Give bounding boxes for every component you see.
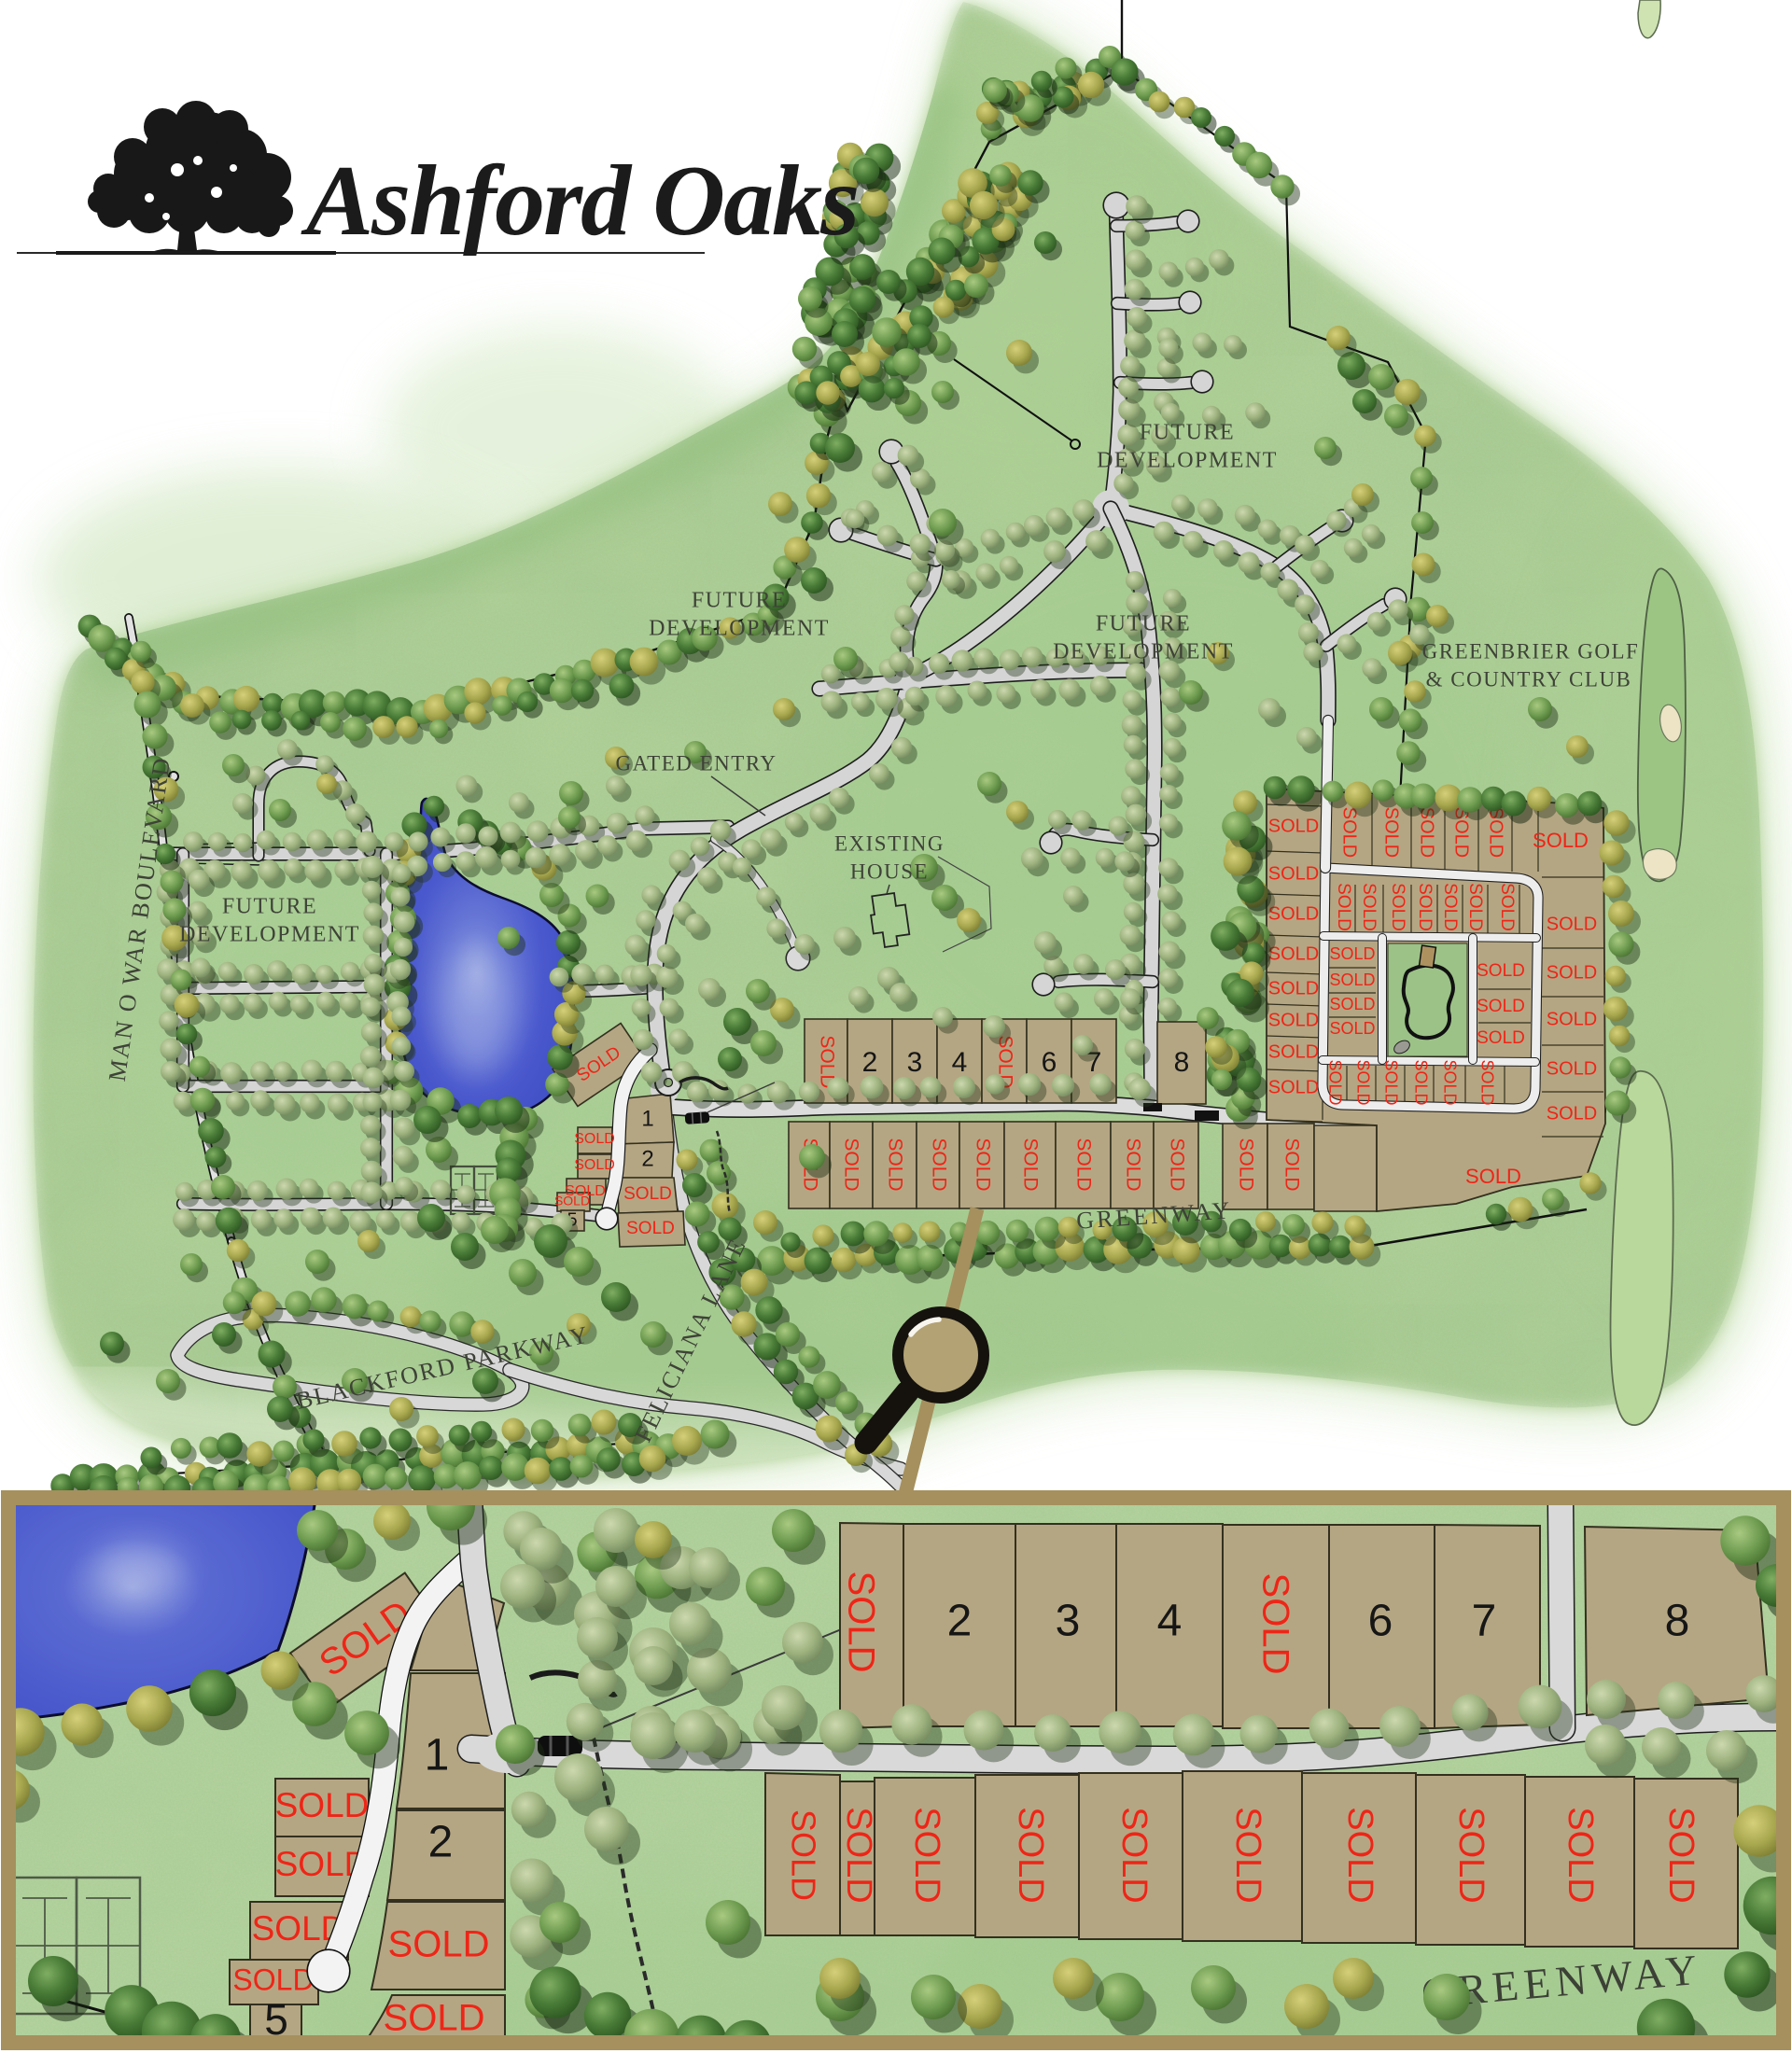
- svg-text:Ashford Oaks: Ashford Oaks: [301, 146, 858, 257]
- svg-text:FUTURE: FUTURE: [222, 895, 317, 919]
- svg-text:SOLD: SOLD: [840, 1138, 861, 1191]
- svg-text:GATED ENTRY: GATED ENTRY: [615, 751, 777, 775]
- svg-text:SOLD: SOLD: [232, 1962, 314, 1996]
- svg-text:SOLD: SOLD: [1268, 1010, 1319, 1030]
- svg-text:SOLD: SOLD: [623, 1184, 672, 1204]
- svg-text:DEVELOPMENT: DEVELOPMENT: [1097, 449, 1278, 473]
- svg-text:2: 2: [862, 1047, 878, 1078]
- svg-text:DEVELOPMENT: DEVELOPMENT: [649, 617, 830, 641]
- svg-text:6: 6: [1042, 1047, 1057, 1078]
- svg-text:SOLD: SOLD: [839, 1807, 878, 1903]
- svg-text:SOLD: SOLD: [1477, 1028, 1525, 1048]
- svg-text:SOLD: SOLD: [1281, 1138, 1302, 1191]
- svg-text:SOLD: SOLD: [1465, 883, 1485, 931]
- svg-text:4: 4: [1157, 1597, 1183, 1646]
- svg-text:SOLD: SOLD: [1268, 816, 1319, 836]
- svg-text:SOLD: SOLD: [1072, 1138, 1094, 1191]
- svg-text:SOLD: SOLD: [1268, 1041, 1319, 1062]
- svg-text:2: 2: [947, 1597, 973, 1646]
- svg-text:FUTURE: FUTURE: [692, 589, 787, 613]
- svg-text:SOLD: SOLD: [1235, 1138, 1256, 1191]
- svg-text:SOLD: SOLD: [1415, 883, 1435, 931]
- svg-text:SOLD: SOLD: [1268, 1077, 1319, 1097]
- svg-text:6: 6: [1368, 1597, 1393, 1646]
- svg-text:SOLD: SOLD: [1334, 883, 1353, 931]
- svg-text:SOLD: SOLD: [1340, 1807, 1379, 1903]
- svg-text:SOLD: SOLD: [1268, 943, 1319, 964]
- svg-text:SOLD: SOLD: [1411, 1059, 1430, 1105]
- svg-text:EXISTING: EXISTING: [834, 831, 945, 855]
- svg-text:SOLD: SOLD: [574, 1157, 615, 1173]
- svg-text:8: 8: [1665, 1597, 1690, 1646]
- svg-text:SOLD: SOLD: [1329, 971, 1375, 989]
- svg-text:SOLD: SOLD: [1388, 883, 1407, 931]
- svg-text:SOLD: SOLD: [1547, 914, 1597, 934]
- svg-text:SOLD: SOLD: [1011, 1807, 1050, 1903]
- svg-text:1: 1: [425, 1731, 450, 1781]
- svg-text:SOLD: SOLD: [1122, 1138, 1143, 1191]
- svg-text:SOLD: SOLD: [907, 1807, 946, 1903]
- svg-text:8: 8: [1174, 1047, 1190, 1078]
- svg-text:SOLD: SOLD: [1440, 883, 1460, 931]
- svg-text:SOLD: SOLD: [1339, 807, 1360, 858]
- svg-text:SOLD: SOLD: [1497, 883, 1517, 931]
- svg-text:SOLD: SOLD: [1329, 1019, 1375, 1038]
- svg-text:SOLD: SOLD: [1561, 1807, 1600, 1903]
- svg-text:FUTURE: FUTURE: [1096, 612, 1191, 636]
- svg-text:SOLD: SOLD: [1477, 1059, 1496, 1105]
- svg-text:SOLD: SOLD: [1547, 1058, 1597, 1079]
- svg-text:3: 3: [907, 1047, 923, 1078]
- svg-text:SOLD: SOLD: [1359, 883, 1379, 931]
- svg-text:SOLD: SOLD: [928, 1138, 949, 1191]
- svg-text:SOLD: SOLD: [1166, 1138, 1187, 1191]
- svg-text:& COUNTRY CLUB: & COUNTRY CLUB: [1426, 667, 1632, 691]
- svg-text:2: 2: [641, 1146, 653, 1171]
- svg-text:SOLD: SOLD: [1533, 829, 1589, 852]
- svg-text:SOLD: SOLD: [1547, 1009, 1597, 1029]
- svg-text:SOLD: SOLD: [275, 1786, 370, 1824]
- svg-text:SOLD: SOLD: [784, 1809, 822, 1901]
- svg-text:4: 4: [952, 1047, 968, 1078]
- svg-text:SOLD: SOLD: [1381, 807, 1402, 858]
- svg-text:SOLD: SOLD: [1451, 1807, 1491, 1903]
- svg-text:DEVELOPMENT: DEVELOPMENT: [179, 923, 360, 947]
- svg-text:SOLD: SOLD: [1353, 1059, 1372, 1105]
- svg-text:SOLD: SOLD: [554, 1194, 590, 1208]
- svg-text:SOLD: SOLD: [1477, 997, 1525, 1016]
- svg-text:GREENBRIER GOLF: GREENBRIER GOLF: [1422, 639, 1640, 663]
- svg-text:SOLD: SOLD: [840, 1571, 881, 1673]
- svg-text:SOLD: SOLD: [1254, 1573, 1295, 1675]
- svg-text:SOLD: SOLD: [1268, 863, 1319, 884]
- svg-text:SOLD: SOLD: [884, 1138, 905, 1191]
- svg-text:SOLD: SOLD: [384, 1998, 485, 2039]
- svg-text:SOLD: SOLD: [574, 1131, 615, 1147]
- svg-text:SOLD: SOLD: [1329, 944, 1375, 963]
- svg-text:2: 2: [428, 1818, 454, 1867]
- svg-text:DEVELOPMENT: DEVELOPMENT: [1053, 640, 1234, 664]
- svg-text:SOLD: SOLD: [1477, 961, 1525, 981]
- svg-text:SOLD: SOLD: [1228, 1807, 1267, 1903]
- svg-text:SOLD: SOLD: [1547, 962, 1597, 983]
- svg-text:SOLD: SOLD: [1381, 1059, 1400, 1105]
- svg-text:SOLD: SOLD: [1325, 1059, 1344, 1105]
- svg-text:SOLD: SOLD: [1661, 1807, 1701, 1903]
- svg-text:3: 3: [1056, 1597, 1081, 1646]
- svg-text:SOLD: SOLD: [1019, 1138, 1041, 1191]
- svg-text:7: 7: [1472, 1597, 1497, 1646]
- svg-text:1: 1: [641, 1106, 653, 1131]
- svg-text:SOLD: SOLD: [1329, 995, 1375, 1013]
- svg-text:SOLD: SOLD: [1465, 1165, 1521, 1188]
- svg-text:SOLD: SOLD: [388, 1924, 490, 1965]
- svg-text:SOLD: SOLD: [1268, 903, 1319, 924]
- svg-text:SOLD: SOLD: [1547, 1103, 1597, 1124]
- svg-text:HOUSE: HOUSE: [850, 859, 929, 883]
- svg-text:FUTURE: FUTURE: [1140, 421, 1235, 445]
- svg-text:SOLD: SOLD: [972, 1138, 993, 1191]
- svg-text:SOLD: SOLD: [1268, 978, 1319, 999]
- svg-text:SOLD: SOLD: [626, 1219, 675, 1238]
- svg-text:SOLD: SOLD: [1440, 1059, 1459, 1105]
- svg-text:SOLD: SOLD: [1114, 1807, 1154, 1903]
